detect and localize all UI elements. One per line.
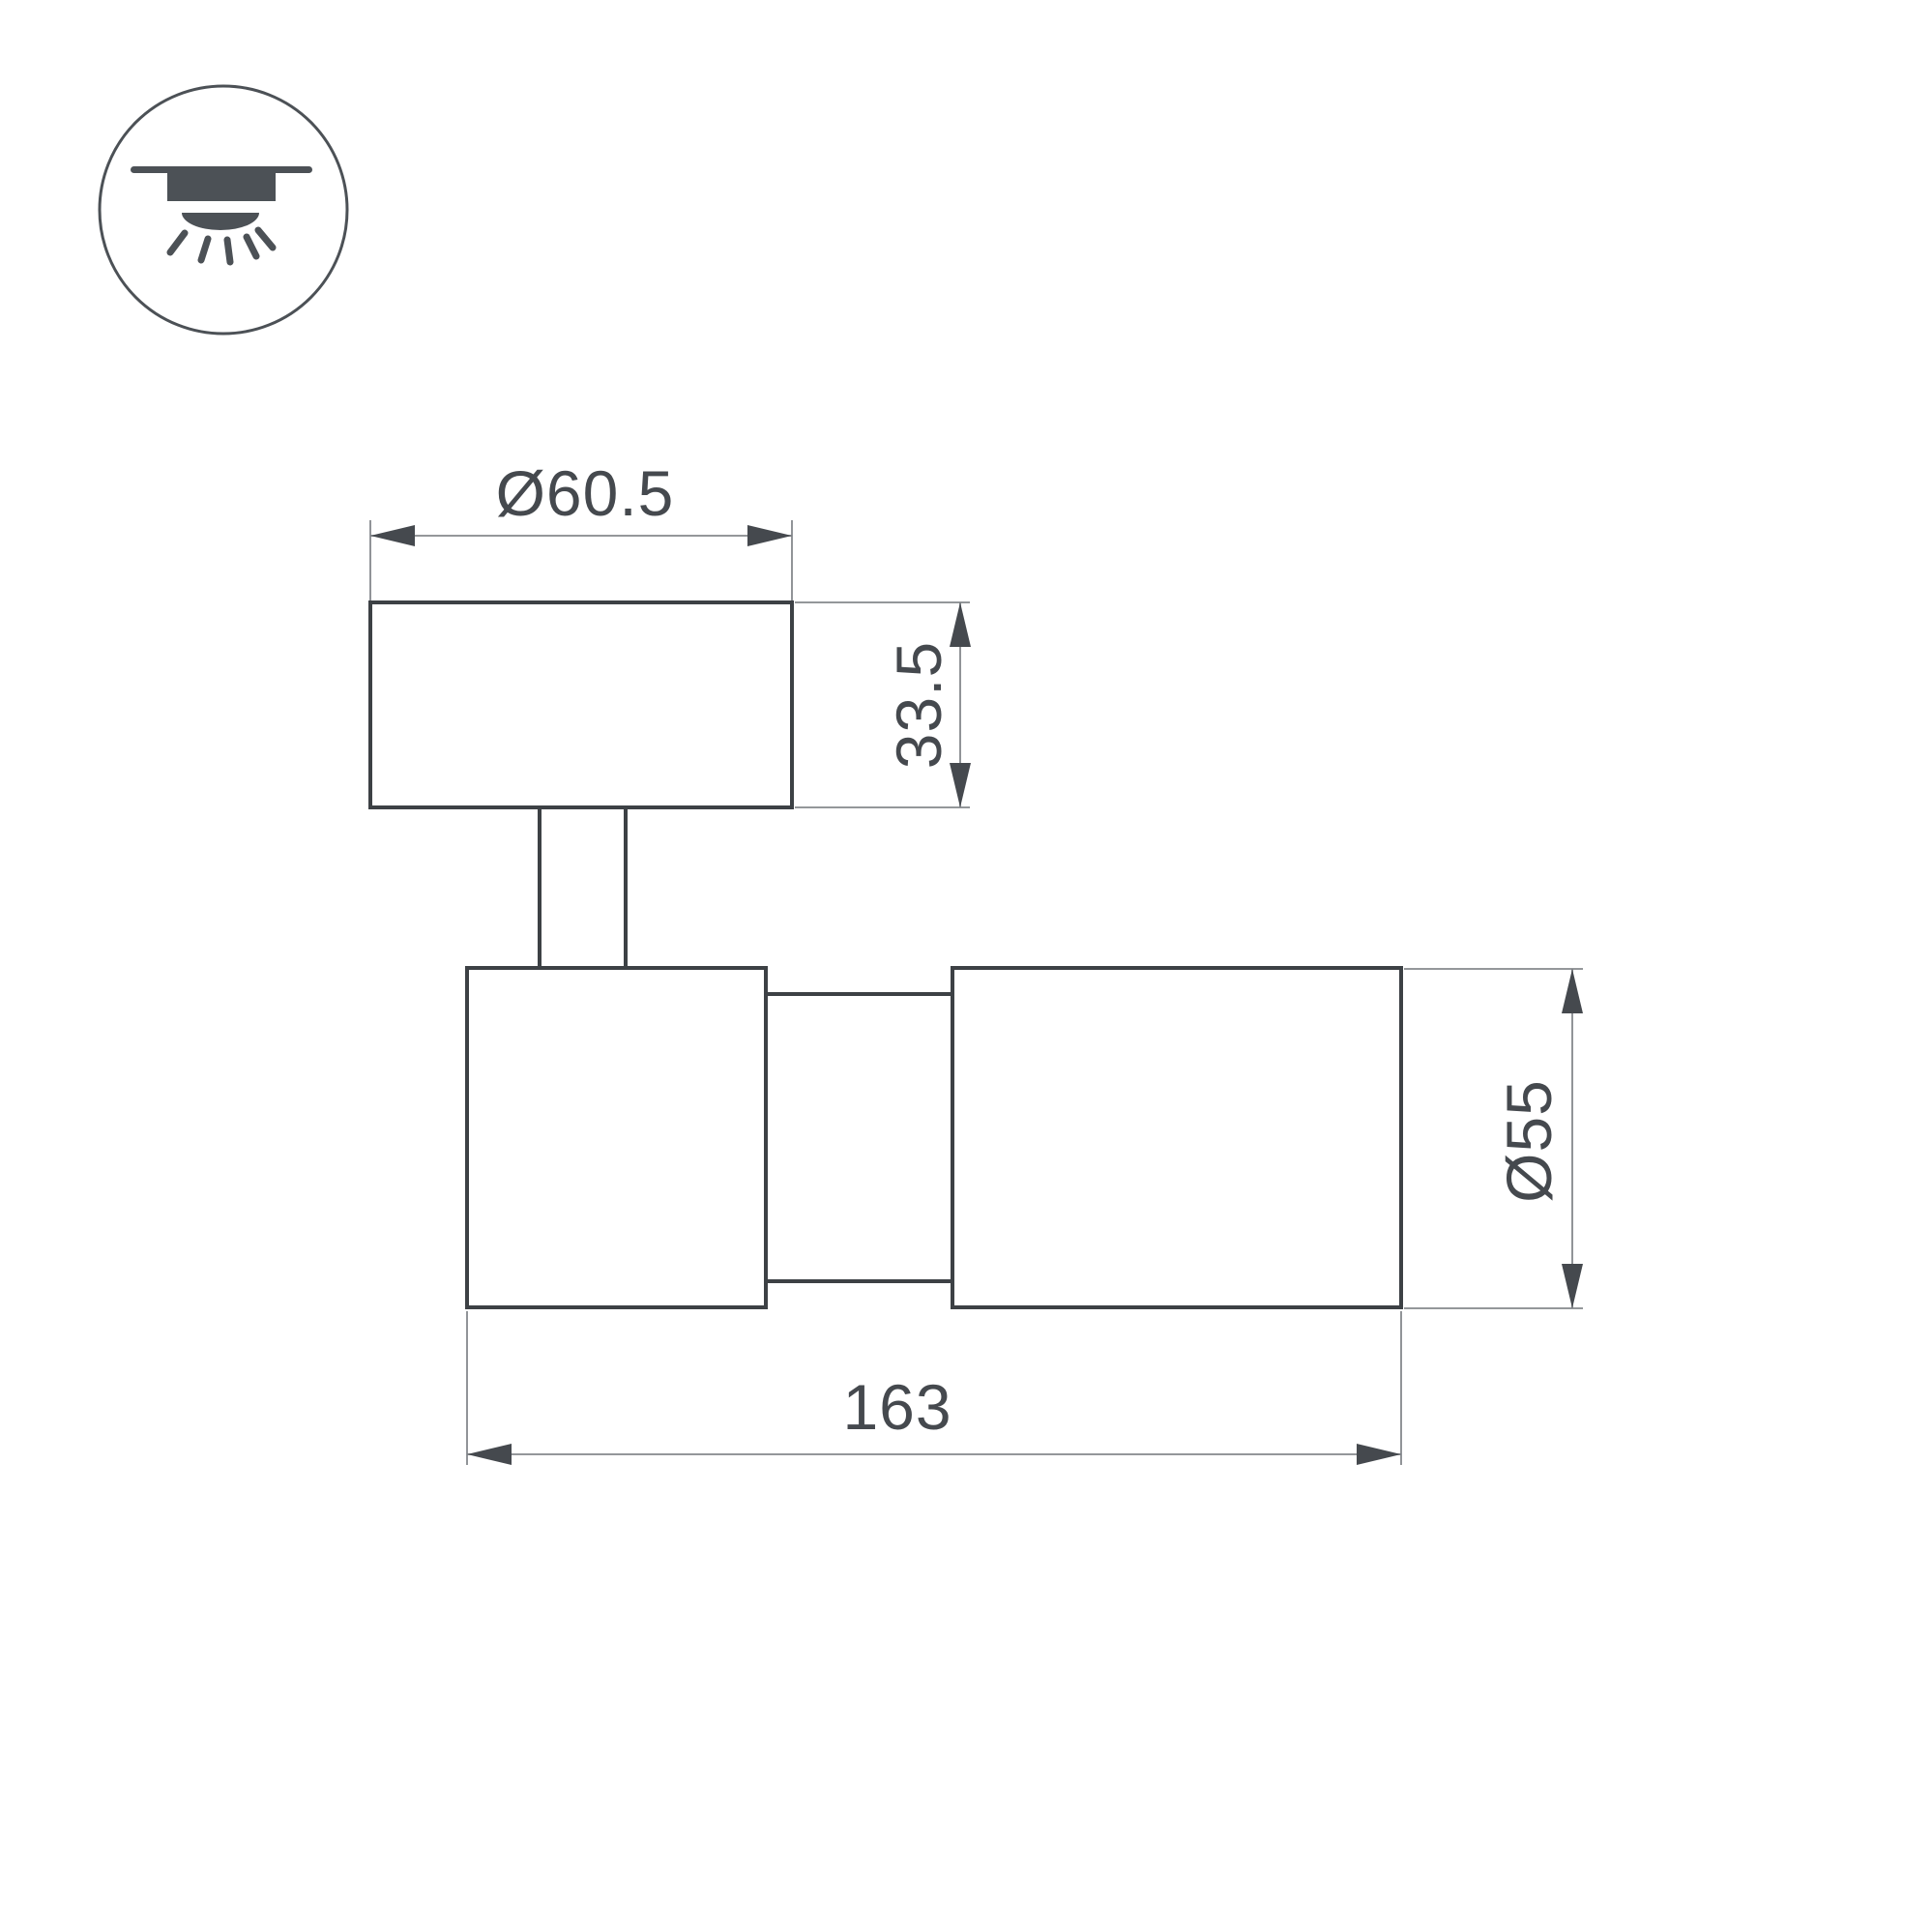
dimension-label-body-length: 163 [842,1371,951,1443]
light-rays-icon [170,230,273,262]
dimension-body-length: 163 [467,1311,1401,1465]
technical-drawing-page: Ø60.5 33.5 Ø55 163 [0,0,1932,1932]
luminaire-cap-view [370,602,792,968]
arrowhead-left [370,525,415,546]
lamp-dome-icon [182,213,259,230]
dimension-label-top-diameter: Ø60.5 [496,457,675,529]
arrowhead-top [950,602,971,647]
dimension-top-diameter: Ø60.5 [370,457,792,600]
dimension-label-body-diameter: Ø55 [1493,1079,1565,1203]
luminaire-body-view [467,968,1401,1307]
arrowhead-right [1357,1444,1401,1465]
body-front-section [952,968,1401,1307]
recessed-housing-icon [167,173,276,201]
body-middle-section [766,994,952,1281]
icon-circle [100,86,347,334]
ceiling-line-icon [131,166,312,173]
dimension-label-cap-height: 33.5 [883,641,954,769]
dimension-body-diameter: Ø55 [1404,969,1583,1308]
technical-drawing-canvas: Ø60.5 33.5 Ø55 163 [0,0,1932,1932]
arrowhead-top [1562,969,1583,1013]
arrowhead-bottom [1562,1264,1583,1308]
cap-outline [370,602,792,807]
mount-type-icon [100,86,347,334]
arrowhead-left [467,1444,512,1465]
body-rear-section [467,968,766,1307]
dimension-cap-height: 33.5 [795,602,971,807]
arrowhead-right [747,525,792,546]
